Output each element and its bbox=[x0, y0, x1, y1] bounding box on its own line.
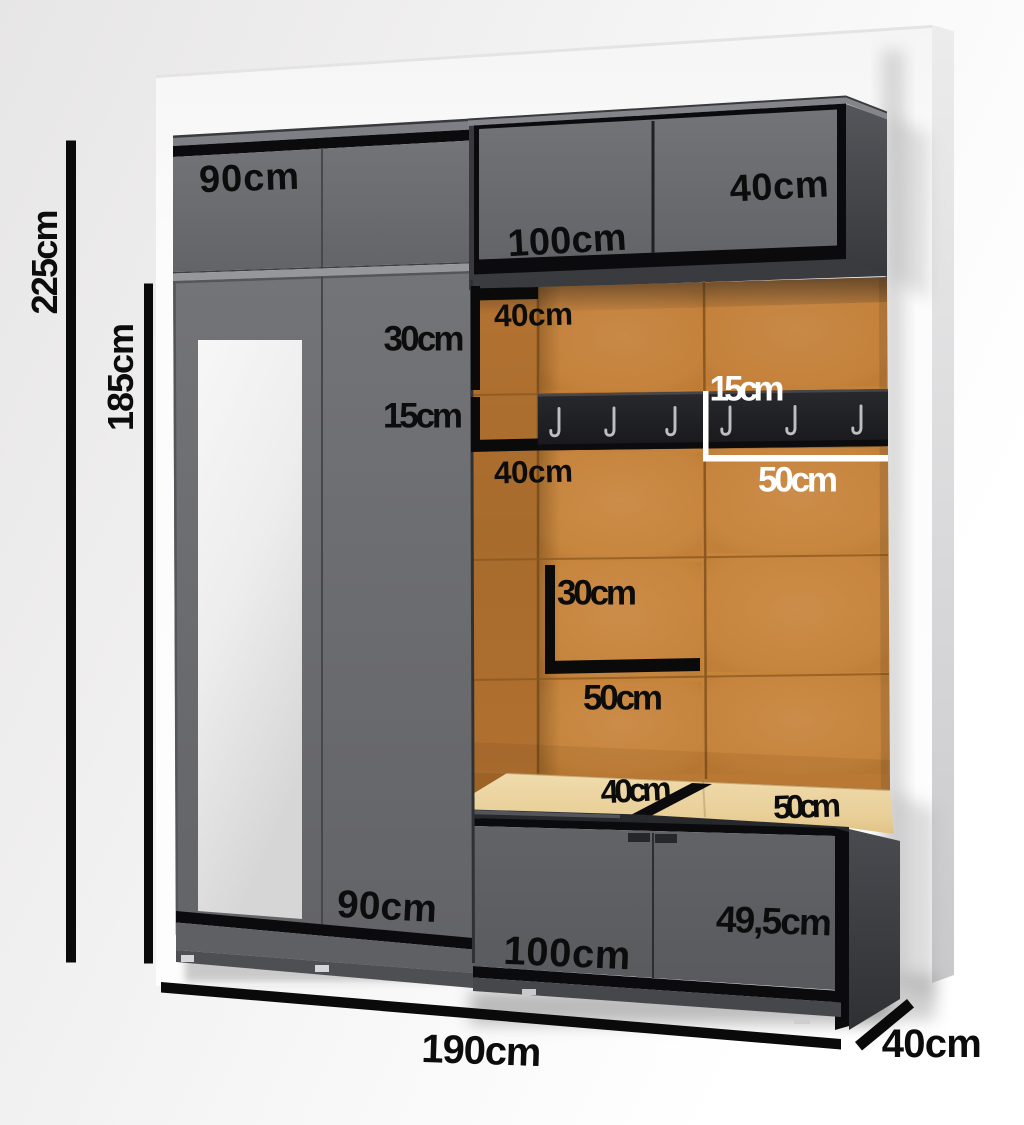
svg-text:40cm: 40cm bbox=[600, 770, 673, 811]
svg-text:50cm: 50cm bbox=[758, 461, 838, 500]
svg-text:50cm: 50cm bbox=[772, 786, 841, 825]
svg-text:190cm: 190cm bbox=[421, 1027, 542, 1075]
svg-text:225cm: 225cm bbox=[24, 210, 65, 315]
svg-text:15cm: 15cm bbox=[710, 370, 785, 409]
svg-text:100cm: 100cm bbox=[506, 217, 627, 266]
svg-text:30cm: 30cm bbox=[384, 320, 465, 359]
svg-text:90cm: 90cm bbox=[336, 883, 438, 931]
svg-text:40cm: 40cm bbox=[729, 163, 830, 210]
svg-text:30cm: 30cm bbox=[557, 574, 637, 613]
svg-text:185cm: 185cm bbox=[100, 323, 141, 431]
svg-text:40cm: 40cm bbox=[494, 295, 574, 333]
svg-text:15cm: 15cm bbox=[383, 397, 463, 436]
svg-text:100cm: 100cm bbox=[503, 929, 632, 978]
svg-text:40cm: 40cm bbox=[882, 1022, 982, 1066]
svg-text:49,5cm: 49,5cm bbox=[715, 898, 832, 943]
svg-text:90cm: 90cm bbox=[198, 156, 299, 201]
svg-text:40cm: 40cm bbox=[494, 452, 574, 490]
svg-text:50cm: 50cm bbox=[583, 679, 663, 718]
